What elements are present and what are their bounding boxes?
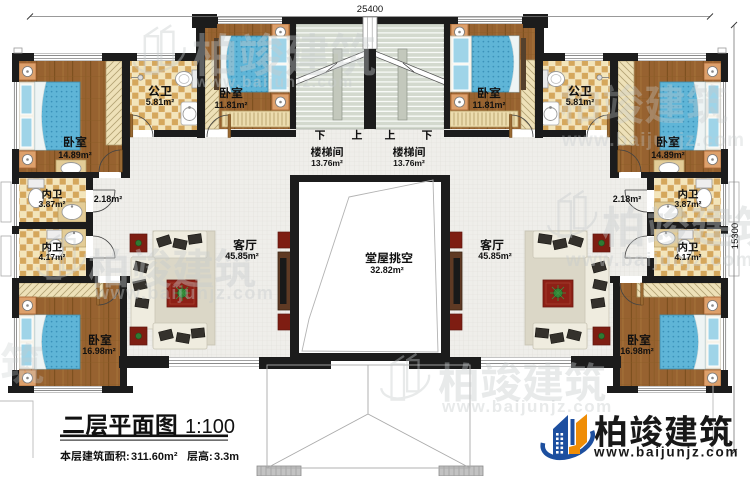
svg-text:45.85m²: 45.85m²: [478, 251, 512, 261]
svg-text:5.81m²: 5.81m²: [566, 97, 595, 107]
svg-text:www.baijunjz.com: www.baijunjz.com: [593, 445, 739, 460]
svg-text:4.17m²: 4.17m²: [39, 252, 66, 262]
svg-text:11.81m²: 11.81m²: [472, 100, 505, 110]
svg-text:4.17m²: 4.17m²: [675, 252, 702, 262]
svg-text:www.baijunjz.com: www.baijunjz.com: [561, 130, 745, 151]
svg-text:16.98m²: 16.98m²: [620, 346, 654, 356]
svg-text:2.18m²: 2.18m²: [94, 194, 123, 204]
svg-text::: :: [126, 451, 130, 463]
svg-text:www.baijunjz.com: www.baijunjz.com: [441, 397, 613, 416]
svg-text:www.baijunjz.com: www.baijunjz.com: [195, 74, 354, 91]
svg-text:45.85m²: 45.85m²: [225, 251, 259, 261]
svg-text:311.60m²: 311.60m²: [131, 451, 178, 463]
svg-text:3.3m: 3.3m: [214, 451, 239, 463]
svg-text:16.98m²: 16.98m²: [82, 346, 116, 356]
svg-text:13.76m²: 13.76m²: [393, 158, 425, 168]
svg-text:11.81m²: 11.81m²: [214, 100, 247, 110]
svg-text:5.81m²: 5.81m²: [146, 97, 175, 107]
svg-text:www.baijunjz.com: www.baijunjz.com: [94, 283, 274, 303]
svg-text:14.89m²: 14.89m²: [651, 150, 685, 160]
svg-text:14.89m²: 14.89m²: [58, 150, 92, 160]
svg-text:2.18m²: 2.18m²: [613, 194, 642, 204]
svg-text:www.baijunjz.com: www.baijunjz.com: [565, 250, 750, 271]
svg-text::: :: [209, 451, 213, 463]
svg-text:3.87m²: 3.87m²: [675, 199, 702, 209]
svg-text:13.76m²: 13.76m²: [311, 158, 343, 168]
svg-text:3.87m²: 3.87m²: [39, 199, 66, 209]
svg-text:32.82m²: 32.82m²: [370, 265, 404, 275]
svg-text:25400: 25400: [357, 4, 383, 15]
